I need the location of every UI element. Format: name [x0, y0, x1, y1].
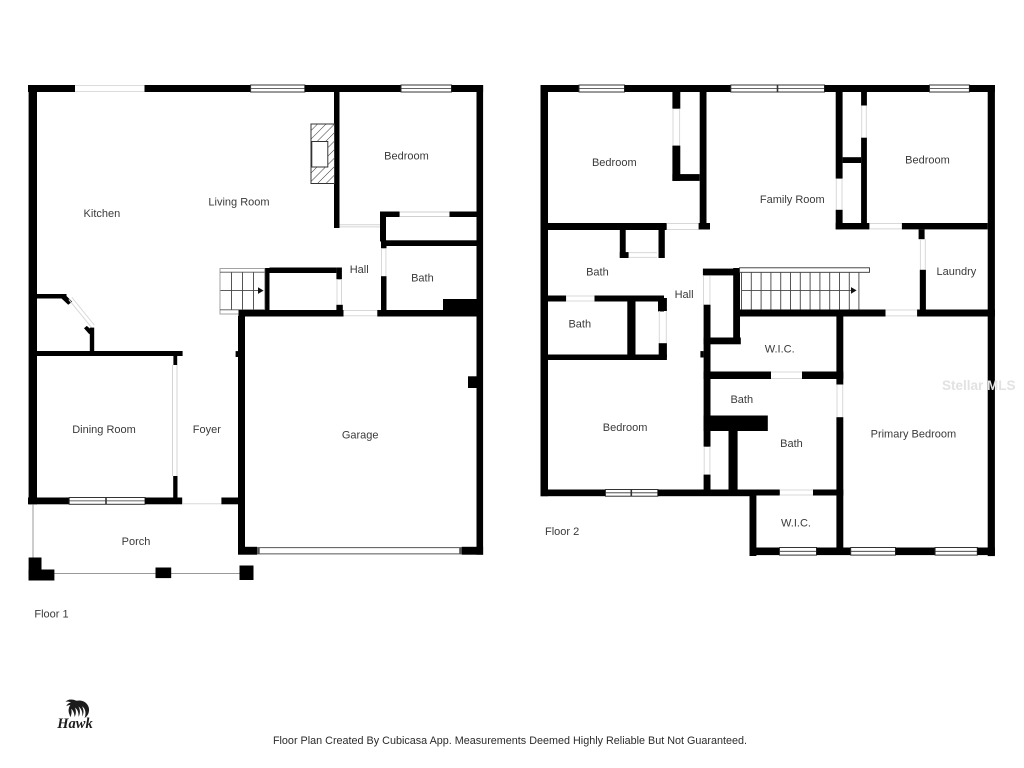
svg-text:Family Room: Family Room [760, 194, 825, 206]
svg-text:Bedroom: Bedroom [384, 150, 429, 162]
svg-text:Floor 2: Floor 2 [545, 526, 579, 538]
svg-text:Porch: Porch [122, 536, 151, 548]
svg-text:Stellar MLS: Stellar MLS [942, 378, 1016, 393]
svg-text:Bath: Bath [568, 318, 591, 330]
svg-text:Primary Bedroom: Primary Bedroom [871, 429, 957, 441]
svg-text:Dining Room: Dining Room [72, 424, 136, 436]
svg-text:W.I.C.: W.I.C. [781, 518, 811, 530]
svg-text:Hall: Hall [675, 289, 694, 301]
svg-text:Hall: Hall [350, 264, 369, 276]
svg-text:Floor Plan Created By Cubicasa: Floor Plan Created By Cubicasa App. Meas… [273, 735, 747, 747]
svg-text:Bath: Bath [780, 438, 803, 450]
svg-text:Bedroom: Bedroom [592, 157, 637, 169]
svg-text:Bath: Bath [730, 394, 753, 406]
svg-text:Garage: Garage [342, 430, 379, 442]
svg-text:Bath: Bath [411, 272, 434, 284]
svg-text:Hawk: Hawk [56, 716, 93, 732]
svg-text:Living Room: Living Room [208, 196, 269, 208]
svg-text:Kitchen: Kitchen [84, 208, 121, 220]
svg-text:Laundry: Laundry [937, 266, 977, 278]
svg-text:Bedroom: Bedroom [603, 422, 648, 434]
svg-text:Bath: Bath [586, 266, 609, 278]
svg-text:Floor 1: Floor 1 [34, 608, 68, 620]
svg-text:Bedroom: Bedroom [905, 154, 950, 166]
svg-text:Foyer: Foyer [193, 424, 221, 436]
svg-text:W.I.C.: W.I.C. [765, 344, 795, 356]
